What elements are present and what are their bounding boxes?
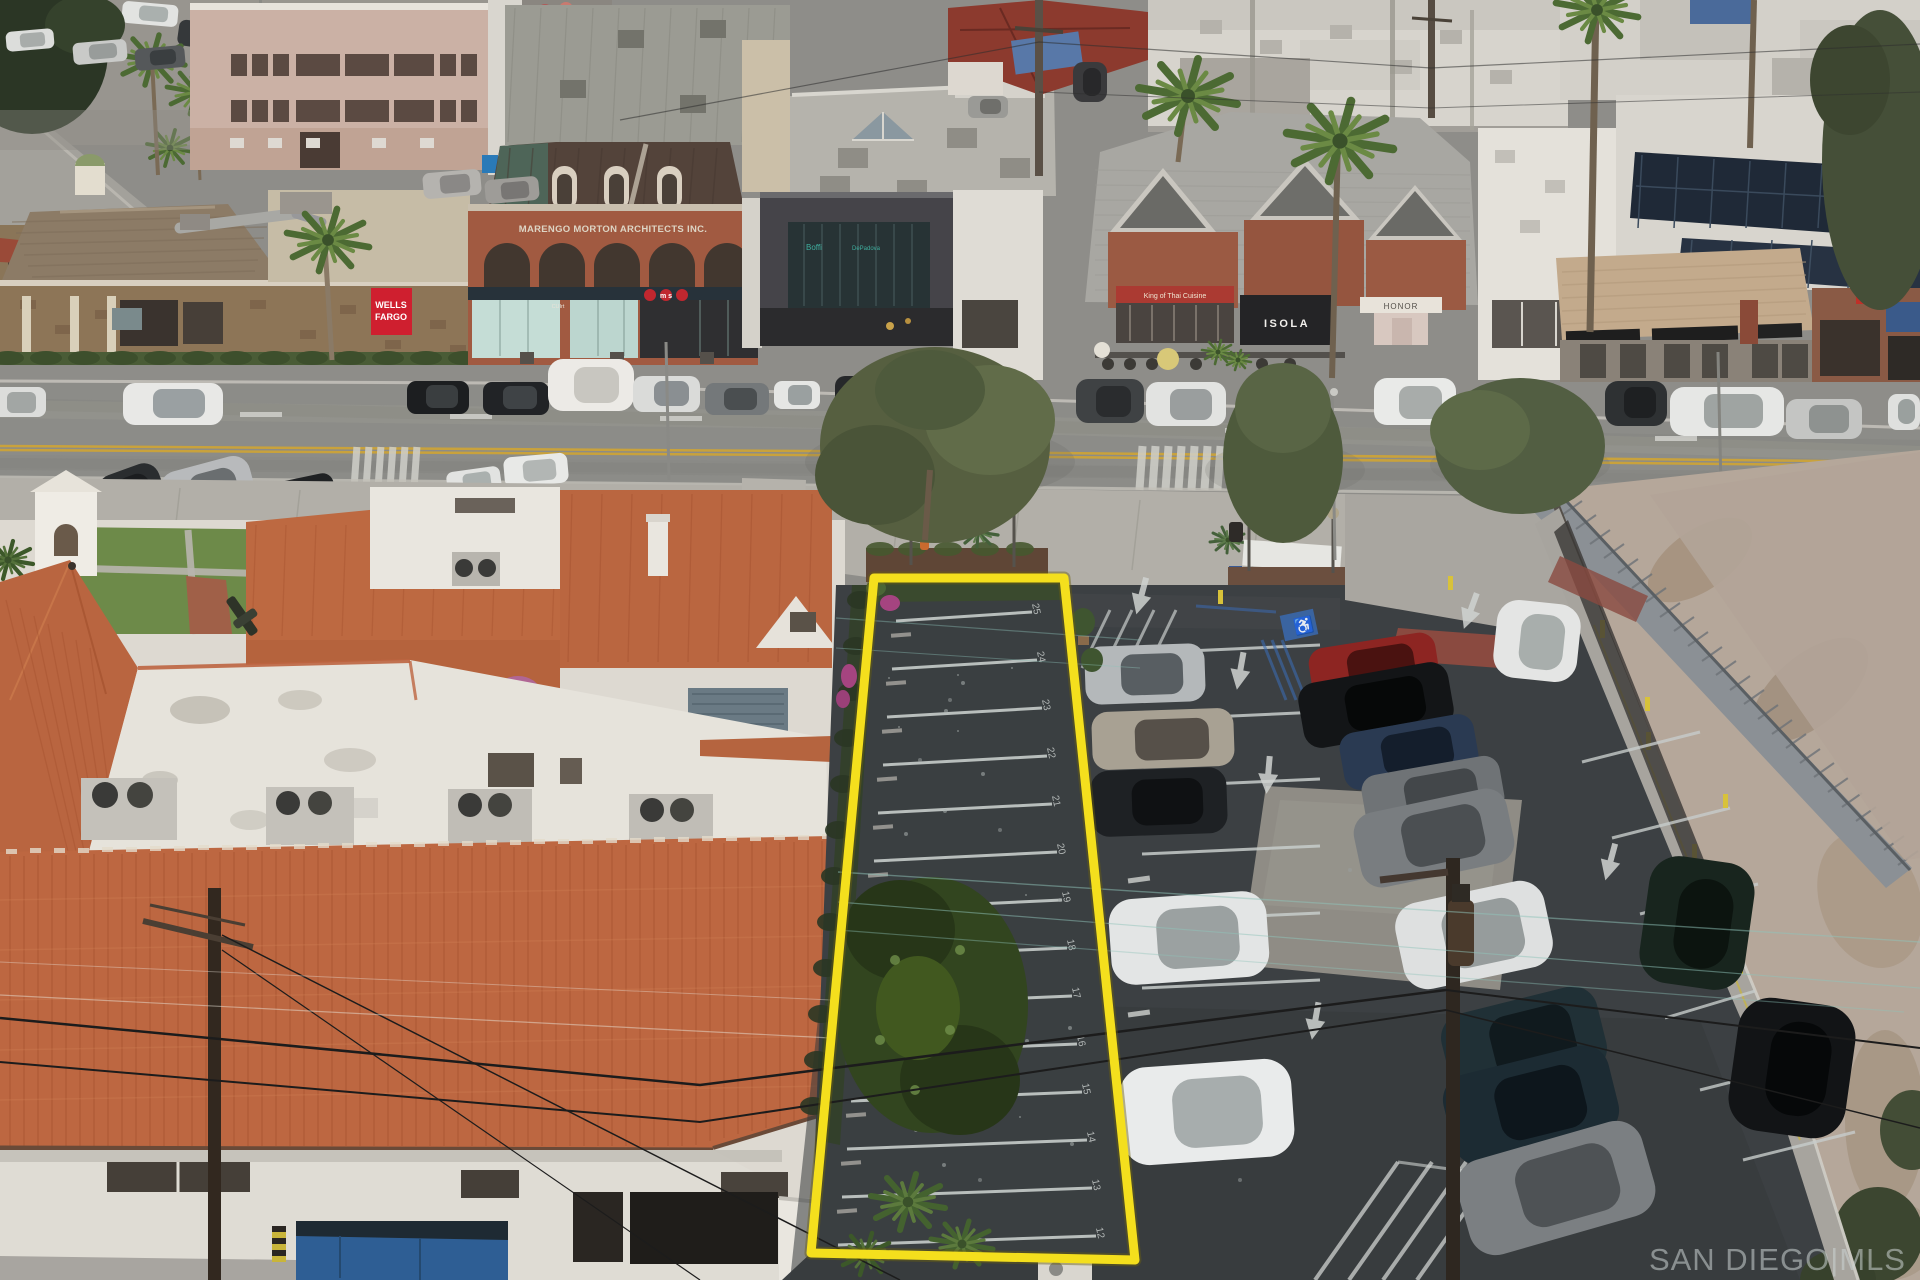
svg-text:ISOLA: ISOLA	[1264, 318, 1310, 330]
svg-text:SAN DIEGO|MLS: SAN DIEGO|MLS	[1649, 1242, 1906, 1277]
svg-text:WELLS: WELLS	[375, 300, 407, 310]
svg-text:DePadova: DePadova	[852, 246, 881, 252]
svg-text:MARENGO MORTON ARCHITECTS INC.: MARENGO MORTON ARCHITECTS INC.	[519, 224, 707, 235]
svg-text:King of Thai Cuisine: King of Thai Cuisine	[1144, 293, 1207, 300]
svg-text:m s: m s	[660, 293, 672, 300]
svg-text:CUIrt: CUIrt	[552, 304, 565, 310]
svg-text:Boffi: Boffi	[806, 243, 822, 252]
svg-text:HONOR: HONOR	[1384, 302, 1419, 311]
svg-text:FARGO: FARGO	[375, 312, 407, 322]
